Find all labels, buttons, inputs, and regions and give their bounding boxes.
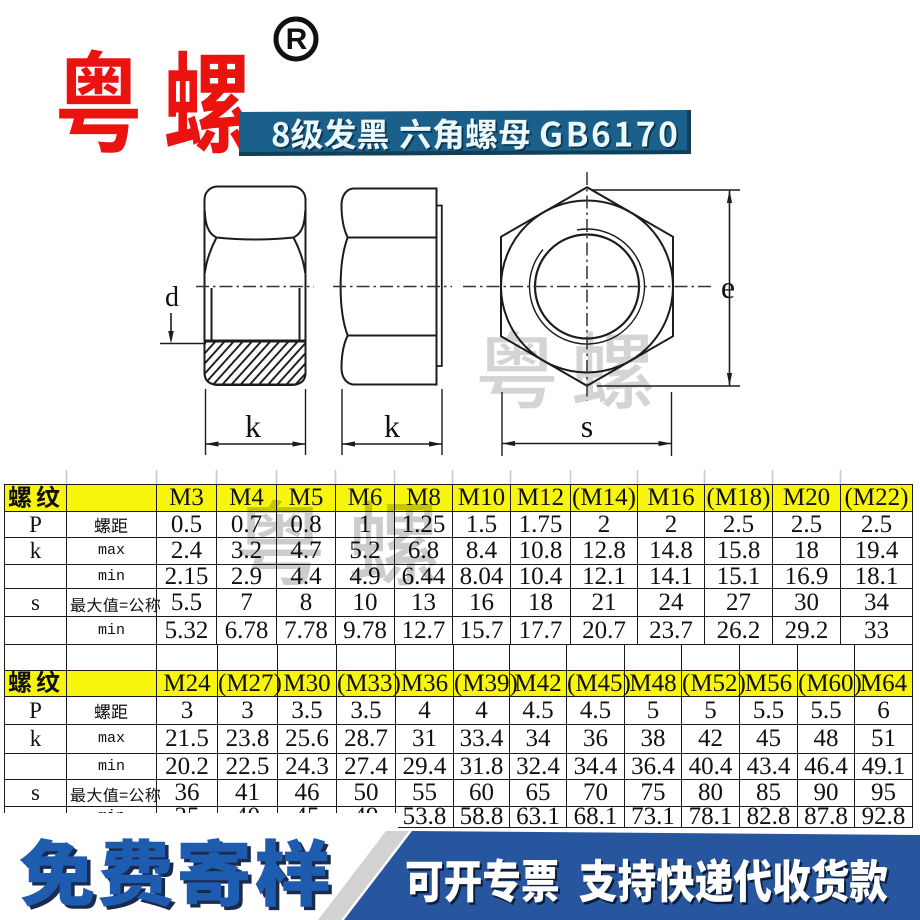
svg-text:d: d [165, 282, 179, 313]
svg-text:s: s [581, 408, 593, 444]
svg-text:k: k [384, 408, 400, 444]
svg-text:k: k [245, 408, 261, 444]
svg-text:e: e [721, 269, 735, 305]
svg-text:R: R [286, 23, 308, 56]
